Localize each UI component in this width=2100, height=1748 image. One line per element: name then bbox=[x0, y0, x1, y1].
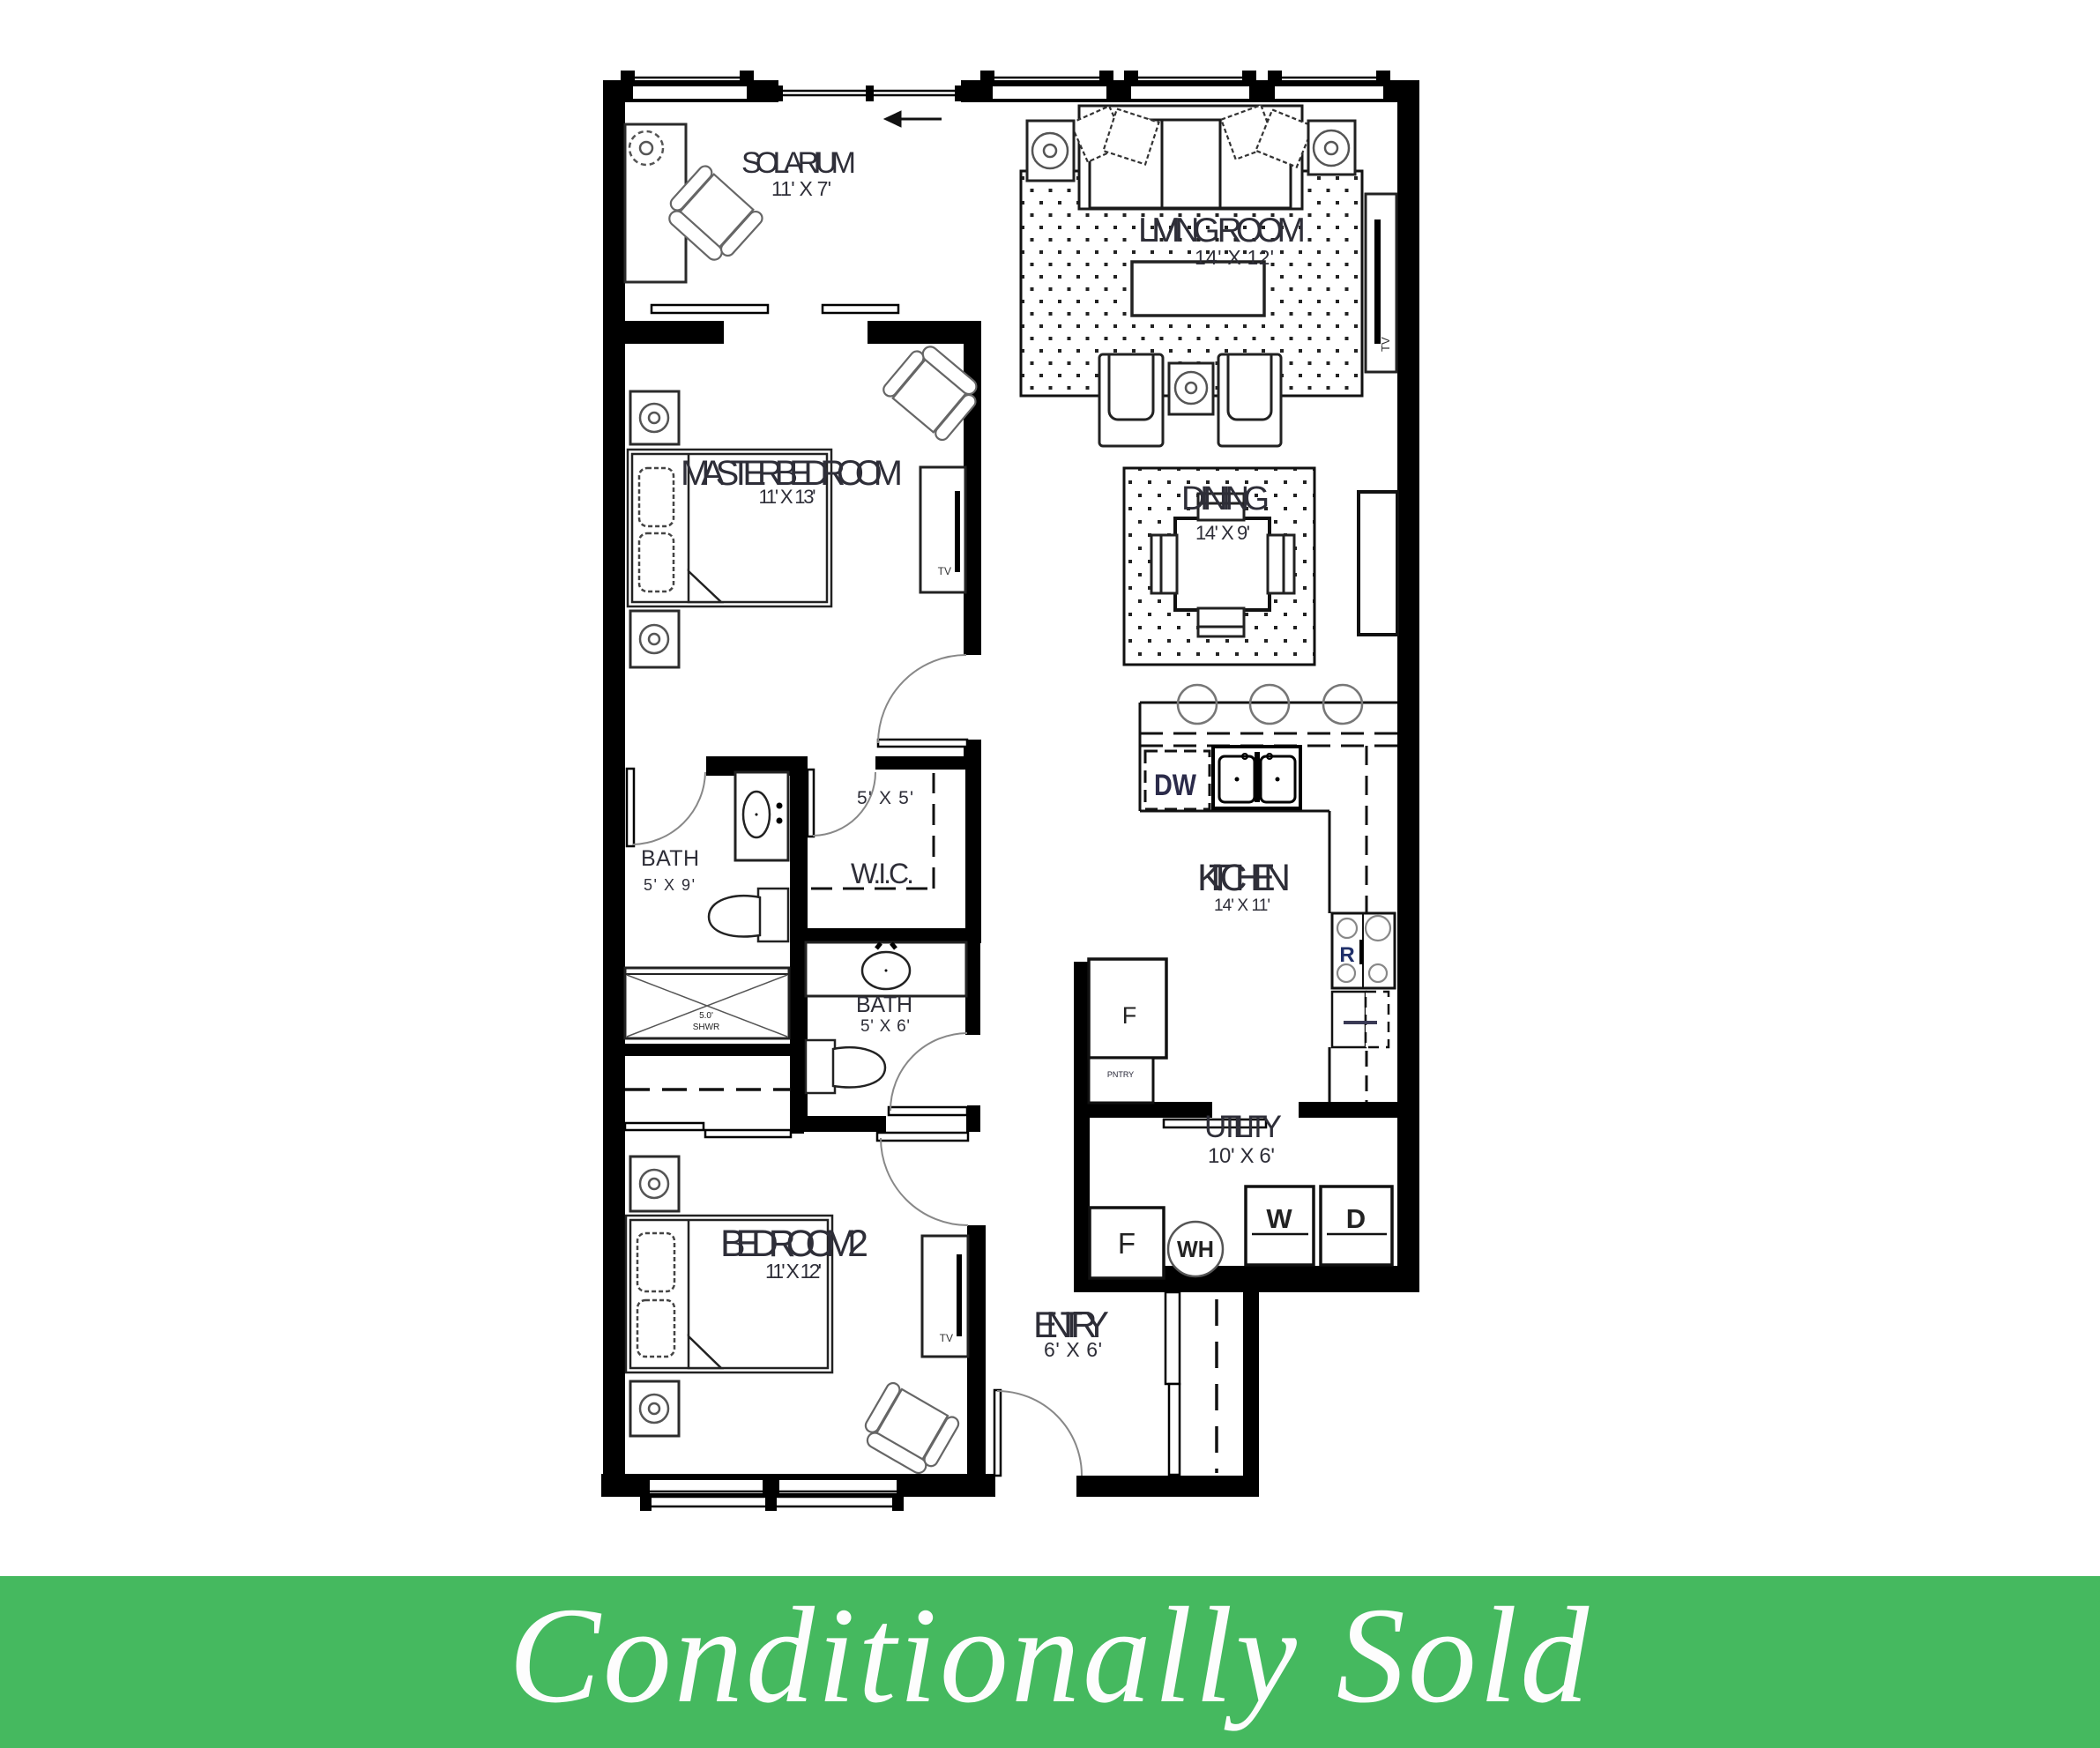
svg-text:TV: TV bbox=[940, 1332, 953, 1344]
svg-text:10' X 6': 10' X 6' bbox=[1208, 1144, 1275, 1168]
svg-text:11' X 12': 11' X 12' bbox=[765, 1260, 822, 1283]
svg-text:DINING: DINING bbox=[1181, 480, 1270, 517]
svg-text:14' X 9': 14' X 9' bbox=[1195, 522, 1250, 544]
svg-text:SOLARIUM: SOLARIUM bbox=[741, 146, 856, 180]
svg-text:11' X 13': 11' X 13' bbox=[759, 486, 816, 508]
svg-text:14' X 11': 14' X 11' bbox=[1214, 896, 1270, 915]
svg-text:BATH: BATH bbox=[856, 993, 912, 1017]
svg-text:BATH: BATH bbox=[641, 846, 699, 871]
svg-text:WH: WH bbox=[1177, 1236, 1214, 1262]
svg-text:14' X 12': 14' X 12' bbox=[1195, 246, 1274, 269]
svg-text:KITCHEN: KITCHEN bbox=[1197, 857, 1291, 899]
svg-text:LIVING ROOM: LIVING ROOM bbox=[1138, 212, 1306, 249]
svg-text:D: D bbox=[1346, 1203, 1366, 1234]
svg-text:Conditionally Sold: Conditionally Sold bbox=[509, 1579, 1591, 1731]
svg-text:F: F bbox=[1118, 1227, 1136, 1260]
svg-text:F: F bbox=[1122, 1002, 1137, 1029]
svg-text:SHWR: SHWR bbox=[693, 1023, 720, 1032]
svg-text:W: W bbox=[1266, 1203, 1292, 1234]
svg-text:TV: TV bbox=[1379, 337, 1392, 352]
svg-text:5' X 9': 5' X 9' bbox=[644, 876, 695, 894]
svg-text:R: R bbox=[1339, 943, 1354, 967]
svg-text:5.0': 5.0' bbox=[699, 1011, 713, 1021]
svg-text:BEDROOM 2: BEDROOM 2 bbox=[720, 1223, 868, 1265]
svg-text:6' X 6': 6' X 6' bbox=[1044, 1338, 1102, 1361]
svg-text:UTILITY: UTILITY bbox=[1204, 1110, 1282, 1144]
svg-text:DW: DW bbox=[1154, 769, 1197, 802]
svg-text:11' X 7': 11' X 7' bbox=[771, 177, 831, 200]
svg-text:5' X 5': 5' X 5' bbox=[857, 788, 913, 808]
svg-text:W.I.C.: W.I.C. bbox=[851, 858, 914, 889]
svg-text:5' X 6': 5' X 6' bbox=[860, 1017, 910, 1036]
svg-text:PNTRY: PNTRY bbox=[1107, 1070, 1134, 1079]
svg-text:TV: TV bbox=[938, 565, 951, 577]
